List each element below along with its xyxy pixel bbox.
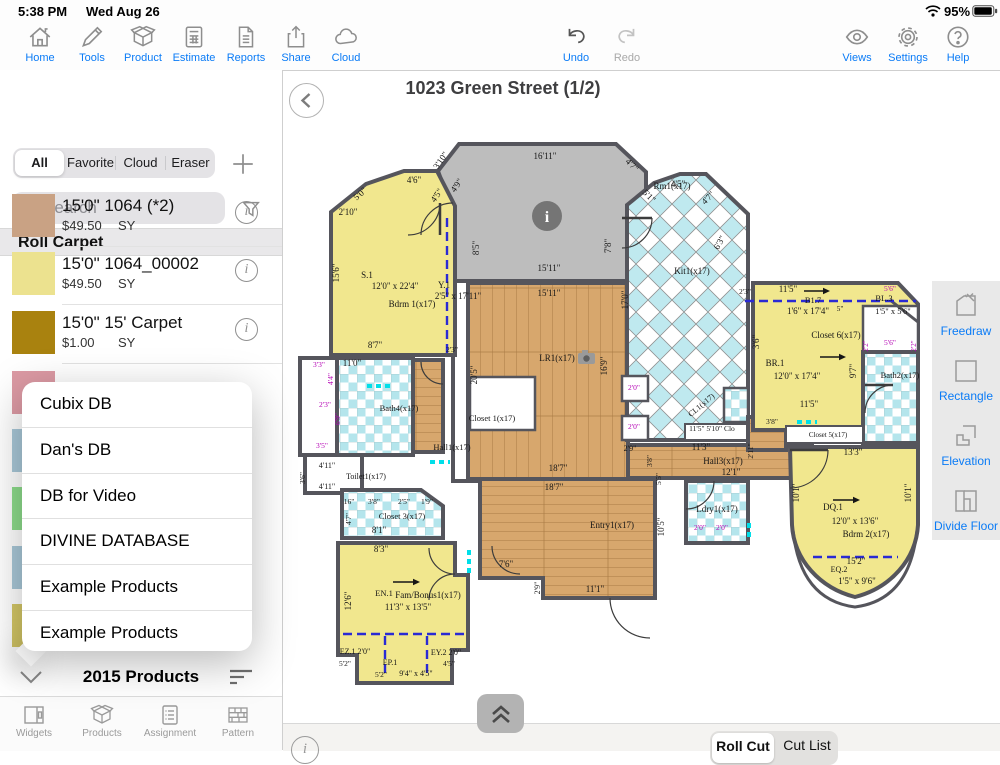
plan-label: 2'3" xyxy=(319,400,331,409)
widgets-icon xyxy=(22,703,46,727)
filter-favorite[interactable]: Favorite xyxy=(66,150,115,176)
plan-label: 10'1" xyxy=(791,483,801,502)
open-box-icon xyxy=(130,24,156,50)
plan-label: 4'5" xyxy=(443,659,455,668)
page-title: 1023 Green Street (1/2) xyxy=(283,78,723,99)
plan-label: Closet 5(x17) xyxy=(809,431,848,439)
sidebar-tabbar: Widgets Products Assignment Pattern xyxy=(0,696,282,751)
canvas-header: 1023 Green Street (1/2) xyxy=(283,70,1000,130)
toolbar-redo[interactable]: Redo xyxy=(597,24,657,64)
product-swatch xyxy=(12,194,55,237)
plan-label: 12'1" xyxy=(722,467,741,477)
tab-widgets[interactable]: Widgets xyxy=(2,703,66,739)
cloud-icon xyxy=(333,24,359,50)
tab-roll-cut[interactable]: Roll Cut xyxy=(712,733,774,763)
plan-label: 3'6" xyxy=(298,472,307,484)
plan-label: 4'5" xyxy=(671,179,686,189)
plan-label: 12'0" x 22'4" xyxy=(372,281,419,291)
plan-label: Bdrm 2(x17) xyxy=(843,529,890,539)
assignment-icon xyxy=(158,703,182,727)
room-entry1[interactable] xyxy=(480,479,655,598)
wifi-icon xyxy=(925,5,941,17)
plan-label: 4'7" xyxy=(344,513,353,525)
tab-products[interactable]: Products xyxy=(70,703,134,739)
filter-segmented-control: All Favorite Cloud Eraser xyxy=(13,148,215,178)
plan-label: S.1 xyxy=(361,270,373,280)
tool-rectangle[interactable]: Rectangle xyxy=(932,356,1000,403)
product-row[interactable]: 15'0" 1064 (*2) $49.50 SY i xyxy=(0,189,282,247)
plan-label: Ldry1(x17) xyxy=(696,504,738,514)
status-time: 5:38 PM xyxy=(18,4,67,19)
plan-label: 15'11" xyxy=(538,288,561,298)
db-menu-item[interactable]: Cubix DB xyxy=(22,382,252,428)
plan-label: 15'11" xyxy=(538,263,561,273)
plan-label: EZ.1 2'0" xyxy=(340,647,370,656)
database-selector[interactable]: 2015 Products xyxy=(0,658,282,696)
plan-label: Hall3(x17) xyxy=(703,456,743,466)
gear-icon xyxy=(895,24,921,50)
plan-label: 3'8" xyxy=(766,417,778,426)
product-row[interactable]: 15'0" 15' Carpet $1.00 SY i xyxy=(0,306,282,364)
plan-label: 1'9" xyxy=(421,497,433,506)
report-document-icon xyxy=(233,24,259,50)
bottom-bar: i xyxy=(283,723,1000,751)
tab-pattern[interactable]: Pattern xyxy=(206,703,270,739)
db-menu-item[interactable]: DB for Video xyxy=(22,474,252,520)
plan-label: 9'4" x 4'5" xyxy=(399,669,432,678)
plan-label: 18'7" xyxy=(545,482,564,492)
tool-divide-floor[interactable]: Divide Floor xyxy=(932,486,1000,533)
draw-tools-panel: Freedraw Rectangle Elevation Divide Floo… xyxy=(932,281,1000,540)
plan-label: 5'5" xyxy=(654,473,663,485)
battery-icon xyxy=(972,5,998,17)
plan-label: 10'5" xyxy=(656,517,666,536)
info-marker-glyph: i xyxy=(545,209,550,226)
toolbar-cloud[interactable]: Cloud xyxy=(316,24,376,64)
plan-label: 2'2" xyxy=(862,340,870,351)
cut-view-segmented: Roll Cut Cut List xyxy=(710,731,838,765)
filter-cloud[interactable]: Cloud xyxy=(116,150,165,176)
plan-label: 4'6" xyxy=(407,175,422,185)
pattern-brick-icon xyxy=(226,703,250,727)
plan-info-button[interactable]: i xyxy=(291,736,319,764)
plan-label: 2'3" xyxy=(446,345,458,354)
database-popover: Cubix DB Dan's DB DB for Video DIVINE DA… xyxy=(22,382,252,651)
plan-label: 1'5" x 5'6" xyxy=(875,306,911,316)
plan-label: 4'11" xyxy=(319,461,335,470)
home-icon xyxy=(27,24,53,50)
plan-label: 11'5" xyxy=(779,284,798,294)
plan-label: 17'0" xyxy=(620,290,630,309)
plan-label: 1'6" x 17'4" xyxy=(787,306,829,316)
calculator-icon xyxy=(181,24,207,50)
plan-label: 2'0" xyxy=(628,383,640,392)
plan-label: 5'2" xyxy=(339,659,351,668)
plan-label: 2'5" xyxy=(398,497,410,506)
plan-label: Closet 6(x17) xyxy=(811,330,860,340)
plan-label: Entry1(x17) xyxy=(590,520,634,530)
filter-eraser[interactable]: Eraser xyxy=(166,150,215,176)
plan-label: Y.1 xyxy=(438,280,450,290)
plan-label: 5'6" xyxy=(884,338,896,347)
plan-label: 11'3" x 13'5" xyxy=(385,602,432,612)
plan-label: 3'5" xyxy=(316,441,328,450)
plan-label: 10'1" xyxy=(903,483,913,502)
plan-label: 2'2" xyxy=(910,340,918,351)
plan-label: EP.1 xyxy=(383,658,397,667)
plan-label: LR1(x17) xyxy=(539,353,575,363)
plan-label: 16'9" xyxy=(599,356,609,375)
plan-label: Bath2(x17) xyxy=(881,370,920,380)
plan-label: 5" xyxy=(837,304,844,313)
product-row[interactable]: 15'0" 1064_00002 $49.50 SY i xyxy=(0,247,282,305)
db-menu-item[interactable]: Example Products xyxy=(22,565,252,611)
plan-label: 1'5" x 9'6" xyxy=(838,576,876,586)
expand-panel-button[interactable] xyxy=(477,694,524,733)
elevation-icon xyxy=(951,421,981,451)
plan-label: 12'0" x 13'6" xyxy=(832,516,879,526)
plan-label: 2'0" xyxy=(716,523,728,532)
db-menu-item[interactable]: Example Products xyxy=(22,611,252,656)
eye-icon xyxy=(844,24,870,50)
plan-label: 2'9" xyxy=(533,582,542,595)
tab-assignment[interactable]: Assignment xyxy=(138,703,202,739)
plan-label: 11'0" xyxy=(343,358,362,368)
rectangle-icon xyxy=(951,356,981,386)
plan-label: 6'9" xyxy=(333,413,342,425)
plan-label: 9'7" xyxy=(848,364,858,379)
products-box-icon xyxy=(90,703,114,727)
room-bath2[interactable] xyxy=(863,352,918,443)
plan-label: 8'7" xyxy=(368,340,383,350)
plan-label: 2'10" xyxy=(339,207,358,217)
double-chevron-up-icon xyxy=(489,702,513,726)
plan-label: 16" xyxy=(344,497,355,506)
sort-icon[interactable] xyxy=(228,668,256,686)
plan-label: 5'6" xyxy=(884,284,896,293)
plan-label: 13'3" xyxy=(844,447,863,457)
plan-label: 11'1" xyxy=(586,584,605,594)
help-icon xyxy=(945,24,971,50)
db-menu-item[interactable]: DIVINE DATABASE xyxy=(22,519,252,565)
plan-label: Kit1(x17) xyxy=(674,266,710,276)
top-toolbar: 5:38 PM Wed Aug 26 95% Home Tools Produc… xyxy=(0,0,1000,71)
plan-label: EN.1 xyxy=(375,588,393,598)
plan-label: 11'3" xyxy=(692,442,711,452)
plan-label: 7'8" xyxy=(603,239,613,254)
plan-label: 8'5" xyxy=(471,241,481,256)
plan-label: 11'5" xyxy=(800,399,819,409)
plan-label: 8'3" xyxy=(374,544,389,554)
plan-label: 4'4" xyxy=(326,373,335,385)
toolbar-help[interactable]: Help xyxy=(928,24,988,64)
plan-label: 3'6" xyxy=(751,335,761,350)
product-info-button[interactable]: i xyxy=(235,259,258,282)
plan-label: EY.2 2'0" xyxy=(431,648,461,657)
redo-icon xyxy=(614,24,640,50)
product-info-button[interactable]: i xyxy=(235,201,258,224)
plan-label: EQ.2 xyxy=(831,565,848,574)
plan-label: 4'11" xyxy=(319,482,335,491)
plan-label: 18'7" xyxy=(549,463,568,473)
tool-freedraw[interactable]: Freedraw xyxy=(932,291,1000,338)
plan-label: Closet 3(x17) xyxy=(379,511,426,521)
toolbar-home[interactable]: Home xyxy=(10,24,70,64)
tab-cut-list[interactable]: Cut List xyxy=(776,731,838,765)
plan-label: B1.7 xyxy=(805,295,821,305)
plan-label: Toilet1(x17) xyxy=(346,472,386,481)
plan-label: DQ.1 xyxy=(823,502,843,512)
freedraw-icon xyxy=(951,291,981,321)
plan-label: Bath4(x17) xyxy=(380,403,419,413)
plan-label: 7'6" xyxy=(499,559,514,569)
plan-label: BR.1 xyxy=(766,358,785,368)
plan-label: 3'8" xyxy=(368,497,380,506)
product-swatch xyxy=(12,311,55,354)
plan-label: 2'0" xyxy=(628,422,640,431)
plan-label: 16'11" xyxy=(534,151,557,161)
product-swatch xyxy=(12,252,55,295)
plan-label: 15'2" xyxy=(847,556,866,566)
plan-label: 2'11" xyxy=(746,443,755,458)
plan-label: Fam/Bonus1(x17) xyxy=(395,590,461,600)
pencil-icon xyxy=(79,24,105,50)
plan-label: 3'3" xyxy=(313,360,325,369)
undo-icon xyxy=(563,24,589,50)
divide-floor-icon xyxy=(951,486,981,516)
add-product-button[interactable] xyxy=(230,151,256,177)
plan-label: 5'2" xyxy=(375,670,387,679)
share-icon xyxy=(283,24,309,50)
product-info-button[interactable]: i xyxy=(235,318,258,341)
plan-label: 3'8" xyxy=(645,455,654,467)
plan-label: 11'5" 5'10" Clo xyxy=(689,424,735,433)
room-bath3[interactable] xyxy=(724,388,748,422)
plan-label: Hall1(x17) xyxy=(433,442,470,452)
plan-label: 2'3" xyxy=(739,287,751,296)
plan-label: BL.3 xyxy=(875,293,892,303)
status-date: Wed Aug 26 xyxy=(86,4,160,19)
plan-label: Closet 1(x17) xyxy=(469,413,516,423)
plan-label: Bdrm 1(x17) xyxy=(389,299,436,309)
tool-elevation[interactable]: Elevation xyxy=(932,421,1000,468)
plan-label: 2'0" xyxy=(694,523,706,532)
plan-label: 12'0" x 17'4" xyxy=(774,371,821,381)
plan-label: 8'1" xyxy=(372,525,387,535)
battery-percent: 95% xyxy=(944,4,970,19)
filter-all[interactable]: All xyxy=(15,150,64,176)
toolbar-estimate[interactable]: Estimate xyxy=(164,24,224,64)
db-menu-item[interactable]: Dan's DB xyxy=(22,428,252,474)
plan-label: 15'6" xyxy=(331,263,341,282)
plan-label: 2'5" x 17'11" xyxy=(435,291,482,301)
plan-label: 12'6" xyxy=(343,591,353,610)
plan-label: 2'9" xyxy=(624,444,637,453)
plan-label: 20'5" xyxy=(469,365,479,384)
